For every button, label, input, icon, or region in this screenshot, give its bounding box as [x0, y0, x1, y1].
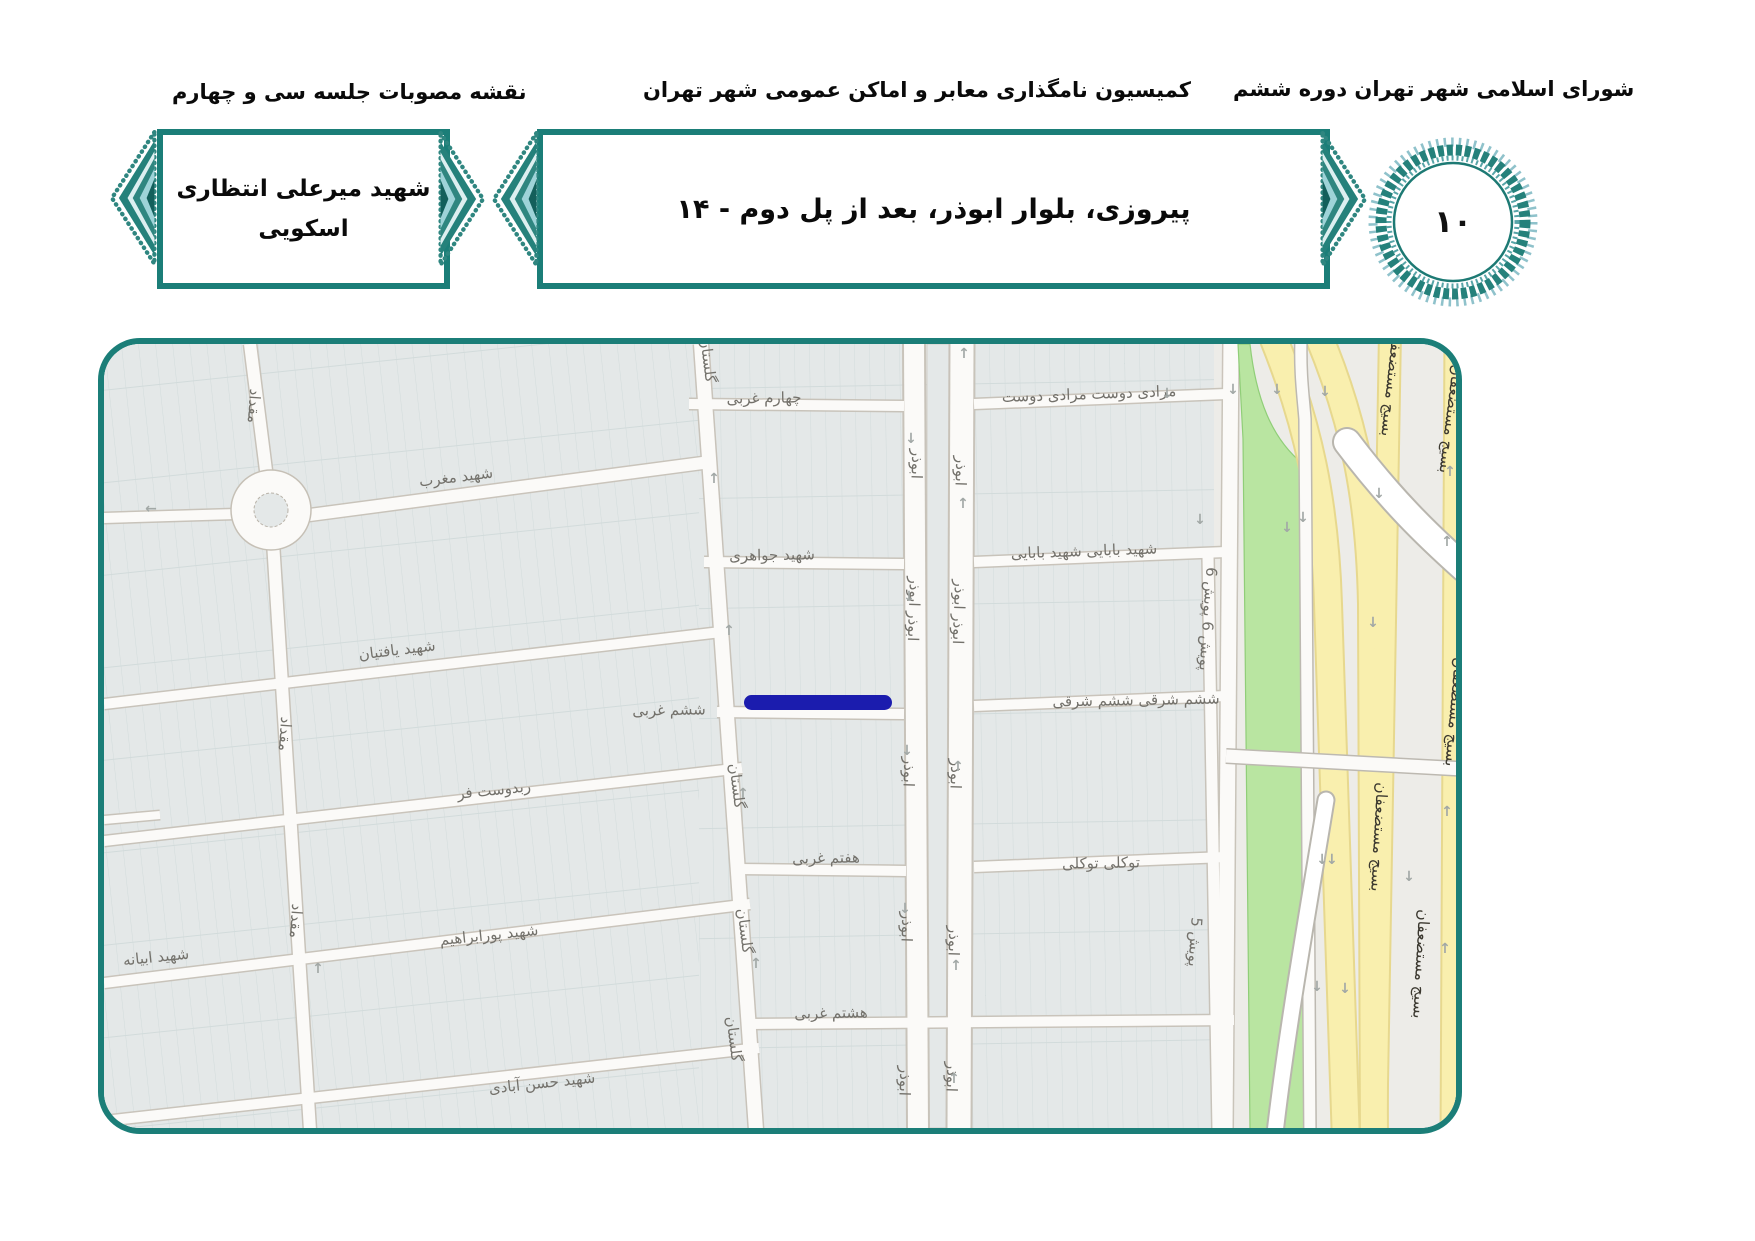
direction-arrow-icon: ↑ — [723, 623, 733, 639]
street-label: شهید یافتیان — [358, 636, 437, 663]
map-container: چهارم غربیمرادی دوست مرادی دوستشهید مغرب… — [98, 338, 1462, 1134]
highlighted-street-segment — [744, 695, 892, 710]
street-label: مقداد — [275, 716, 295, 752]
street-label: ششم شرقی ششم شرقی — [1052, 690, 1220, 711]
direction-arrow-icon: ↑ — [958, 346, 968, 362]
direction-arrow-icon: ↓ — [1339, 981, 1349, 997]
direction-arrow-icon: ↓ — [1271, 382, 1281, 398]
approved-name-line1: شهید میرعلی انتظاری — [176, 176, 430, 202]
direction-arrow-icon: ↓ — [1403, 869, 1413, 885]
street-label: مرادی دوست مرادی دوست — [1001, 382, 1176, 406]
direction-arrow-icon: ↓ — [1319, 384, 1329, 400]
direction-arrow-icon: ↑ — [957, 496, 967, 512]
street-label: شهید پورابراهیم — [439, 921, 539, 949]
direction-arrow-icon: ↑ — [1441, 534, 1451, 550]
street-label: بسیج مستضعفان — [1409, 909, 1433, 1019]
street-label: مقداد — [244, 388, 264, 424]
street-label: توکلی توکلی — [1062, 853, 1140, 872]
direction-arrow-icon: ← — [145, 501, 155, 517]
direction-arrow-icon: ↑ — [312, 961, 322, 977]
street-label: پویش 6 پویش 6 — [1195, 567, 1220, 672]
street-label: بسیج مستضعفان — [1367, 782, 1391, 892]
street-label: شهید ابیانه — [122, 945, 190, 970]
direction-arrow-icon: ↓↓ — [1316, 852, 1335, 868]
lace-ornament-icon — [1320, 120, 1372, 278]
direction-arrow-icon: ↓ — [1281, 520, 1291, 536]
street-label: بسیج مستضعفان — [1377, 338, 1406, 437]
direction-arrow-icon: ↓ — [1227, 382, 1237, 398]
street-label: ابوذر — [895, 1066, 914, 1097]
street-label: ابوذر ابوذر — [949, 579, 969, 644]
direction-arrow-icon: ↓ — [901, 743, 911, 759]
direction-arrow-icon: ↑ — [948, 1071, 958, 1087]
direction-arrow-icon: ↓ — [1194, 512, 1204, 528]
street-label: چهارم غربی — [726, 388, 801, 407]
sheet-number: ۱۰ — [1367, 136, 1539, 308]
street-label: ابوذر — [907, 449, 926, 480]
street-label: مقداد — [286, 903, 306, 939]
street-label: گلستان — [733, 907, 756, 954]
approved-name-line2: اسکویی — [258, 216, 348, 242]
street-label: شهید حسن آبادی — [488, 1068, 596, 1097]
direction-arrow-icon: ↑ — [952, 759, 962, 775]
street-label: شهید جواهری — [729, 545, 815, 564]
sheet-number-medallion: ۱۰ — [1367, 136, 1539, 308]
direction-arrow-icon: ↑ — [950, 958, 960, 974]
direction-arrow-icon: ↓ — [1373, 486, 1383, 502]
header-title-session-map: نقشه مصوبات جلسه سی و چهارم — [172, 80, 527, 104]
lace-ornament-icon — [487, 120, 539, 278]
lace-ornament-icon — [438, 120, 490, 278]
location-box: پیروزی، بلوار ابوذر، بعد از پل دوم - ۱۴ — [537, 129, 1330, 289]
direction-arrow-icon: ↓ — [905, 431, 915, 447]
direction-arrow-icon: ↑ — [708, 471, 718, 487]
lace-ornament-icon — [105, 117, 157, 279]
header-title-commission: کمیسیون نامگذاری معابر و اماکن عمومی شهر… — [643, 78, 1191, 102]
street-label: هشتم غربی — [794, 1003, 868, 1022]
direction-arrow-icon: ↑ — [750, 956, 760, 972]
direction-arrow-icon: ↑ — [1441, 804, 1451, 820]
street-label: ابوذر ابوذر — [904, 576, 924, 641]
direction-arrow-icon: ↓ — [1311, 979, 1321, 995]
street-label: ابوذر — [899, 757, 918, 788]
street-label: ربدوست فر — [456, 777, 532, 803]
street-label: هفتم غربی — [792, 848, 860, 867]
street-label: پویش 5 — [1184, 917, 1205, 968]
header-title-council: شورای اسلامی شهر تهران دوره ششم — [1233, 77, 1634, 101]
direction-arrow-icon: ↑ — [1439, 941, 1449, 957]
street-label: شهید بابایی شهید بابایی — [1011, 539, 1158, 562]
street-label: ششم غربی — [632, 700, 706, 719]
street-label: بسیج مستضعفان — [1435, 364, 1462, 475]
direction-arrow-icon: ↓ — [899, 901, 909, 917]
street-label: ابوذر — [944, 926, 963, 957]
street-label: بسیج مستضعفان — [1441, 657, 1462, 768]
direction-arrow-icon: ↓ — [1367, 615, 1377, 631]
direction-arrow-icon: ↑ — [1444, 464, 1454, 480]
street-label: ابوذر — [951, 456, 970, 487]
street-label: گلستان — [722, 1015, 745, 1062]
direction-arrow-icon: ↑ — [737, 786, 747, 802]
approved-name-box: شهید میرعلی انتظاری اسکویی — [157, 129, 450, 289]
map-label-layer: چهارم غربیمرادی دوست مرادی دوستشهید مغرب… — [104, 344, 1456, 1128]
direction-arrow-icon: ↓ — [1297, 510, 1307, 526]
direction-arrow-icon: ↓ — [903, 589, 913, 605]
street-label: گلستان — [696, 338, 719, 384]
document-page: شورای اسلامی شهر تهران دوره ششم کمیسیون … — [0, 0, 1755, 1241]
street-label: شهید مغرب — [418, 464, 494, 491]
direction-arrow-icon: ↓ — [1161, 386, 1171, 402]
location-text: پیروزی، بلوار ابوذر، بعد از پل دوم - ۱۴ — [677, 194, 1191, 225]
